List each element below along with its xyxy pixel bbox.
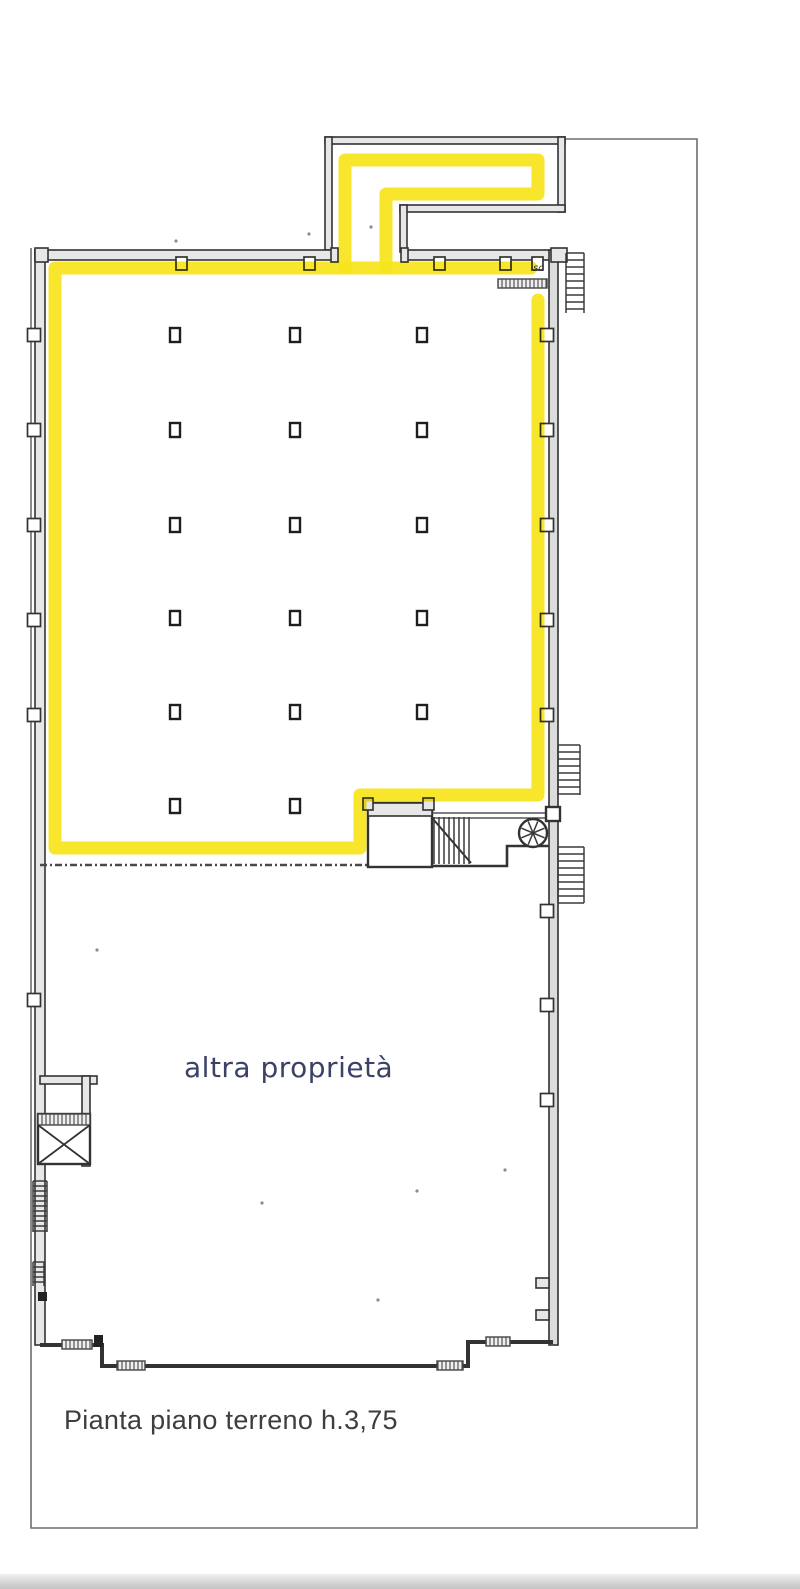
speck xyxy=(95,948,98,951)
speck xyxy=(174,239,177,242)
right-wall xyxy=(549,250,558,1345)
window-mark xyxy=(486,1337,510,1346)
wall-pilaster xyxy=(541,999,554,1012)
column-grid xyxy=(170,328,427,813)
wall-pilaster xyxy=(541,905,554,918)
corner-post xyxy=(551,248,567,262)
floor-plan-drawing: sc xyxy=(0,0,800,1589)
scanned-floor-plan-page: sc altra proprietà Pianta piano terreno … xyxy=(0,0,800,1589)
column-marker xyxy=(290,705,300,719)
column-marker xyxy=(417,423,427,437)
scan-edge-shadow xyxy=(0,1574,800,1589)
pillar-mark xyxy=(94,1335,103,1347)
stair-hatch xyxy=(566,253,584,313)
speck xyxy=(503,1168,506,1171)
column-marker xyxy=(290,518,300,532)
window-mark xyxy=(117,1361,145,1370)
plan-title-label: Pianta piano terreno h.3,75 xyxy=(64,1405,398,1436)
highlight-segment xyxy=(55,268,538,848)
highlighted-unit-perimeter xyxy=(55,160,538,848)
column-marker xyxy=(170,423,180,437)
speck xyxy=(376,1298,379,1301)
column-marker xyxy=(417,518,427,532)
wall-pilaster xyxy=(28,519,41,532)
speck xyxy=(260,1201,263,1204)
column-marker xyxy=(170,611,180,625)
wall-pilaster xyxy=(28,614,41,627)
wall-pilaster xyxy=(28,329,41,342)
column-marker xyxy=(417,705,427,719)
window-mark xyxy=(437,1361,463,1370)
scan-specks xyxy=(95,225,506,1301)
wall-pilaster xyxy=(28,424,41,437)
speck xyxy=(307,232,310,235)
wall-pilaster xyxy=(541,1094,554,1107)
other-property-label: altra proprietà xyxy=(184,1051,393,1084)
stair-block xyxy=(363,798,560,867)
stair-hatch xyxy=(558,745,580,795)
corner-post xyxy=(35,248,48,262)
wall-pilaster xyxy=(28,994,41,1007)
wall-pilaster xyxy=(28,709,41,722)
door-sill-hatch xyxy=(498,279,547,288)
window-mark xyxy=(62,1340,92,1349)
stair-hatch-marks xyxy=(33,253,584,1286)
speck xyxy=(369,225,372,228)
column-marker xyxy=(290,611,300,625)
stair-label: sc xyxy=(533,263,544,274)
column-marker xyxy=(417,328,427,342)
column-marker xyxy=(170,799,180,813)
speck xyxy=(415,1189,418,1192)
column-marker xyxy=(170,705,180,719)
stair-hatch xyxy=(558,847,584,903)
column-marker xyxy=(170,518,180,532)
column-marker xyxy=(417,611,427,625)
column-marker xyxy=(290,328,300,342)
column-marker xyxy=(290,799,300,813)
column-marker xyxy=(170,328,180,342)
column-marker xyxy=(290,423,300,437)
